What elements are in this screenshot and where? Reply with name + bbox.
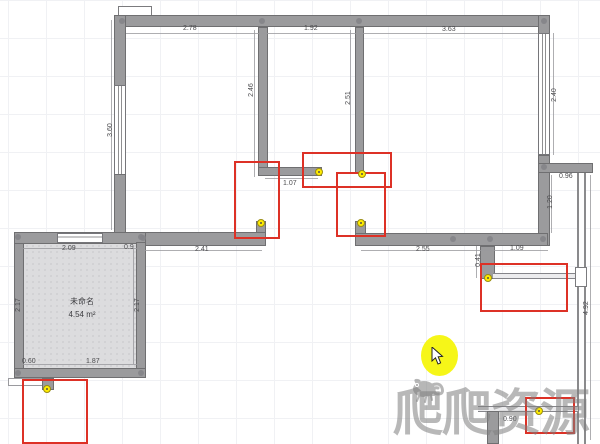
dimension-label: 0.9 xyxy=(124,244,134,252)
endpoint-marker[interactable] xyxy=(357,219,365,227)
wall-junction-dot xyxy=(487,236,493,242)
dimension-label: 3.63 xyxy=(442,26,456,34)
window-balcony[interactable] xyxy=(575,267,587,287)
dimension-label: 2.51 xyxy=(345,91,353,105)
room-wall-bottom[interactable] xyxy=(14,368,146,378)
dimension-label: 1.20 xyxy=(547,195,555,209)
floorplan-canvas[interactable]: 2.78 1.92 3.63 3.60 2.46 2.51 2.40 0.96 … xyxy=(0,0,600,444)
dimension-label: 2.17 xyxy=(15,298,23,312)
highlight-box-1 xyxy=(234,161,280,239)
wall-segment-left-upper[interactable] xyxy=(114,15,126,87)
room-window-top[interactable] xyxy=(57,233,103,243)
dimension-label: 2.78 xyxy=(183,25,197,33)
wall-segment-left-lower[interactable] xyxy=(114,174,126,234)
endpoint-marker[interactable] xyxy=(358,170,366,178)
endpoint-marker[interactable] xyxy=(257,219,265,227)
wall-segment-interior-1[interactable] xyxy=(258,27,268,169)
dimension-line xyxy=(18,248,141,249)
wall-junction-dot xyxy=(356,18,362,24)
room-name-label: 未命名 xyxy=(42,296,122,307)
chameleon-logo-icon xyxy=(406,374,450,404)
dimension-line xyxy=(126,33,538,34)
dimension-label: 2.41 xyxy=(195,246,209,254)
dimension-label: 2.40 xyxy=(551,88,559,102)
endpoint-marker[interactable] xyxy=(484,274,492,282)
dimension-label: 2.46 xyxy=(248,83,256,97)
wall-junction-dot xyxy=(138,370,144,376)
wall-junction-dot xyxy=(138,234,144,240)
dimension-label: 2.09 xyxy=(62,245,76,253)
wall-junction-dot xyxy=(541,18,547,24)
cursor-arrow-icon xyxy=(431,347,445,365)
wall-junction-dot xyxy=(450,236,456,242)
room-area-label: 4.54 m² xyxy=(42,310,122,319)
highlight-box-4 xyxy=(480,263,568,312)
window-right[interactable] xyxy=(538,33,550,155)
dimension-label: 2.55 xyxy=(416,246,430,254)
wall-junction-dot xyxy=(15,370,21,376)
dimension-label: 1.87 xyxy=(86,358,100,366)
dimension-line xyxy=(18,364,141,365)
window-left[interactable] xyxy=(114,85,126,176)
dimension-label: 0.96 xyxy=(559,173,573,181)
wall-junction-dot xyxy=(540,236,546,242)
endpoint-marker[interactable] xyxy=(43,385,51,393)
dimension-label: 2.17 xyxy=(134,298,142,312)
dimension-label: 4.92 xyxy=(583,301,591,315)
wall-junction-dot xyxy=(259,18,265,24)
wall-junction-dot xyxy=(15,234,21,240)
dimension-label: 0.60 xyxy=(22,358,36,366)
dimension-line xyxy=(254,30,255,177)
highlight-box-6 xyxy=(22,379,88,444)
endpoint-marker[interactable] xyxy=(315,168,323,176)
dimension-label: 1.09 xyxy=(510,245,524,253)
wall-junction-dot xyxy=(119,18,125,24)
dimension-label: 1.07 xyxy=(283,180,297,188)
wall-junction-dot xyxy=(541,164,547,170)
dimension-label: 1.92 xyxy=(304,25,318,33)
highlight-box-3 xyxy=(336,172,386,237)
dimension-label: 3.60 xyxy=(107,123,115,137)
